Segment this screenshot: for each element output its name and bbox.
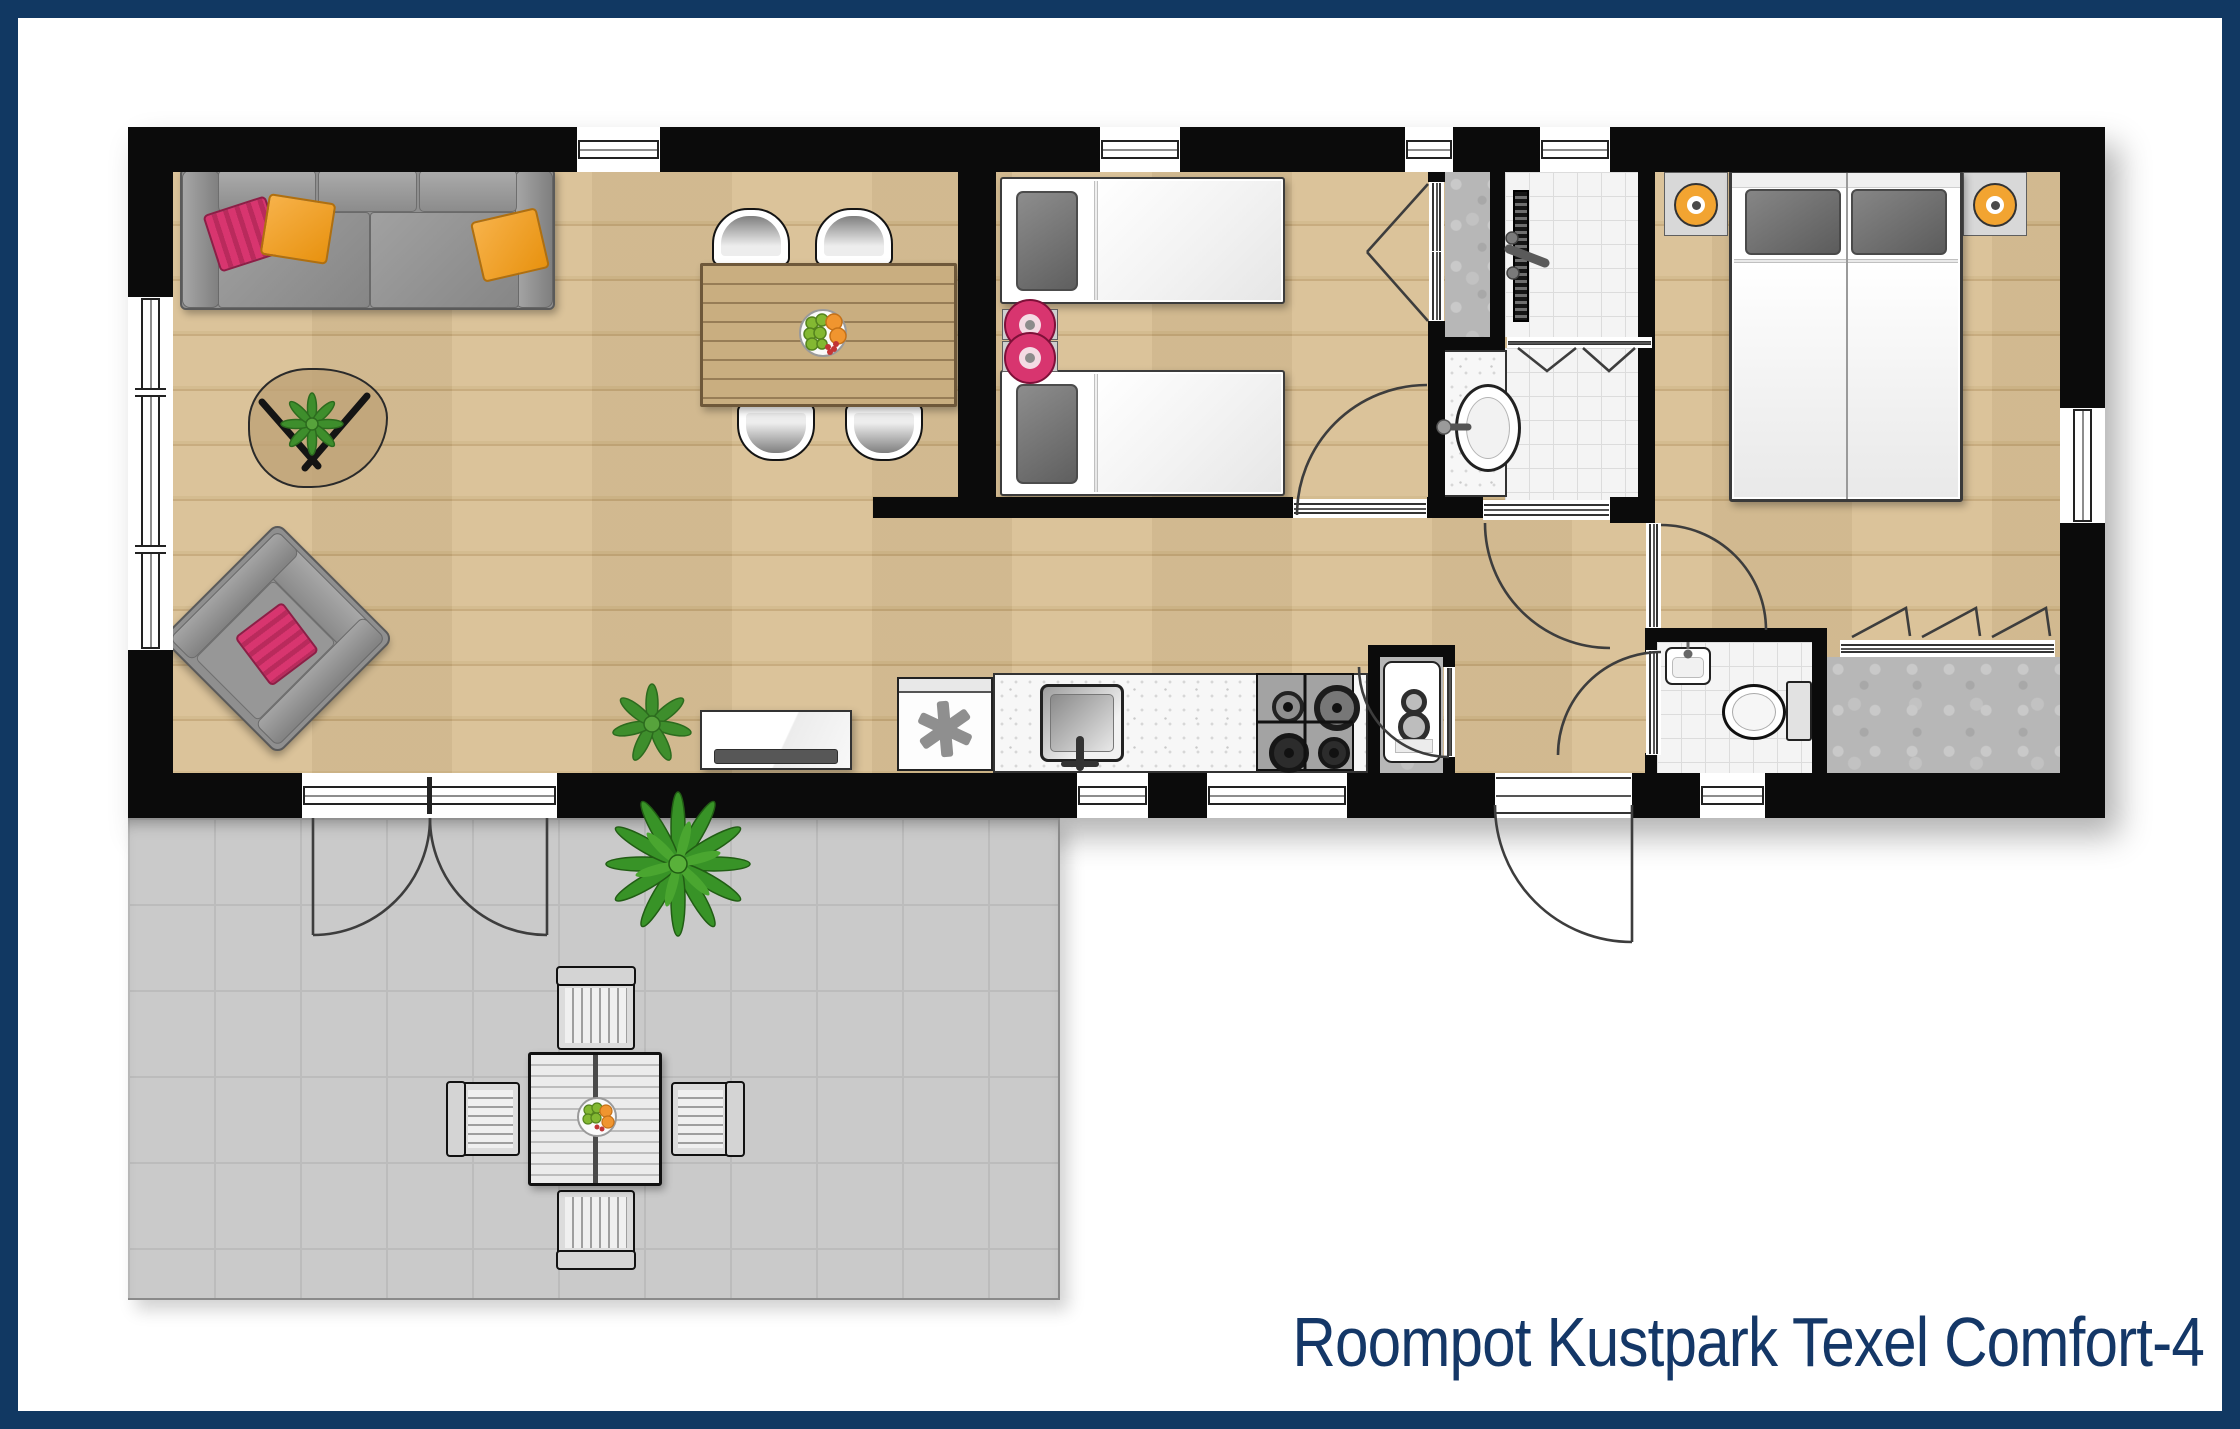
plan-title: Roompot Kustpark Texel Comfort-4 — [1292, 1302, 2204, 1382]
single-bed — [1000, 370, 1285, 496]
burner — [1272, 691, 1304, 723]
twin-wardrobe-interior — [1445, 172, 1490, 337]
bed-pillow — [1745, 189, 1841, 255]
wall-bedroom-south — [873, 497, 1293, 518]
bedside-lamp — [1973, 183, 2017, 227]
bed-pillow — [1016, 384, 1078, 484]
back-door — [1495, 773, 1632, 818]
bathroom-washbasin — [1455, 384, 1521, 472]
door-swing — [1495, 805, 1632, 942]
sofa — [180, 168, 555, 310]
twin-bedroom-door — [1293, 499, 1427, 518]
garden-chair — [671, 1082, 743, 1156]
garden-chair-back — [556, 1250, 636, 1270]
bed-duvet — [1094, 374, 1281, 492]
garden-chair-back — [725, 1081, 745, 1157]
window — [1540, 127, 1610, 172]
shower-bifold-door — [1507, 337, 1652, 348]
garden-chair — [557, 968, 635, 1050]
shower-drain — [1513, 190, 1529, 322]
wall-wc-north — [1645, 628, 1827, 642]
wall-boiler-west — [1368, 657, 1380, 773]
window — [1077, 773, 1148, 818]
single-bed — [1000, 177, 1285, 304]
bedside-lamp — [1674, 183, 1718, 227]
window — [1700, 773, 1765, 818]
wall-segment — [1443, 757, 1455, 773]
wall-segment — [1428, 172, 1445, 182]
gas-hob — [1256, 673, 1354, 771]
bed-pillow — [1851, 189, 1947, 255]
window — [577, 127, 660, 172]
burner — [1318, 737, 1350, 769]
wall-segment — [1427, 497, 1483, 518]
boiler-unit — [1383, 661, 1441, 763]
garden-chair — [448, 1082, 520, 1156]
french-door-mullion — [427, 777, 432, 814]
wall-segment — [1443, 337, 1505, 350]
window — [1405, 127, 1453, 172]
toilet-cistern — [1786, 681, 1812, 741]
master-wardrobe-folding-door — [1840, 640, 2055, 657]
window-transom — [135, 545, 166, 554]
bathroom-floor — [1505, 348, 1638, 500]
pink-stool — [1004, 332, 1056, 384]
wall-boiler-north — [1368, 645, 1455, 657]
toilet-bowl — [1722, 684, 1786, 740]
wc-door — [1646, 650, 1661, 755]
wall-wc-east — [1812, 628, 1827, 774]
master-bedroom-door — [1646, 523, 1661, 628]
tv-cabinet — [700, 710, 852, 770]
window — [1207, 773, 1347, 818]
bed-pillow — [1016, 191, 1078, 291]
wall-segment — [1443, 657, 1455, 667]
window-living-west — [128, 297, 173, 650]
bathroom-door — [1483, 500, 1610, 520]
window-transom — [135, 388, 166, 397]
master-wardrobe-interior — [1827, 657, 2060, 773]
wall-living-bedroom — [958, 172, 996, 498]
double-bed — [1729, 170, 1963, 502]
dining-table — [700, 263, 957, 407]
wall-segment — [1645, 753, 1657, 774]
kitchen-sink — [1040, 684, 1124, 762]
orange-cushion — [260, 193, 337, 265]
wc-hand-basin — [1665, 647, 1711, 685]
garden-chair — [557, 1190, 635, 1268]
window-master-east — [2060, 408, 2105, 523]
garden-chair-back — [556, 966, 636, 986]
tv — [714, 749, 838, 764]
dishwasher — [897, 677, 993, 771]
twin-wardrobe-door — [1429, 182, 1444, 252]
burner — [1314, 685, 1360, 731]
bed-duvet — [1094, 181, 1281, 300]
twin-wardrobe-door — [1429, 251, 1444, 321]
dining-chair — [712, 208, 790, 266]
garden-table — [528, 1052, 662, 1186]
burner — [1269, 733, 1309, 773]
boiler-closet-door — [1444, 667, 1455, 757]
dining-chair — [815, 208, 893, 266]
wall-closet-shower — [1490, 172, 1505, 340]
window — [1100, 127, 1180, 172]
garden-chair-back — [446, 1081, 466, 1157]
